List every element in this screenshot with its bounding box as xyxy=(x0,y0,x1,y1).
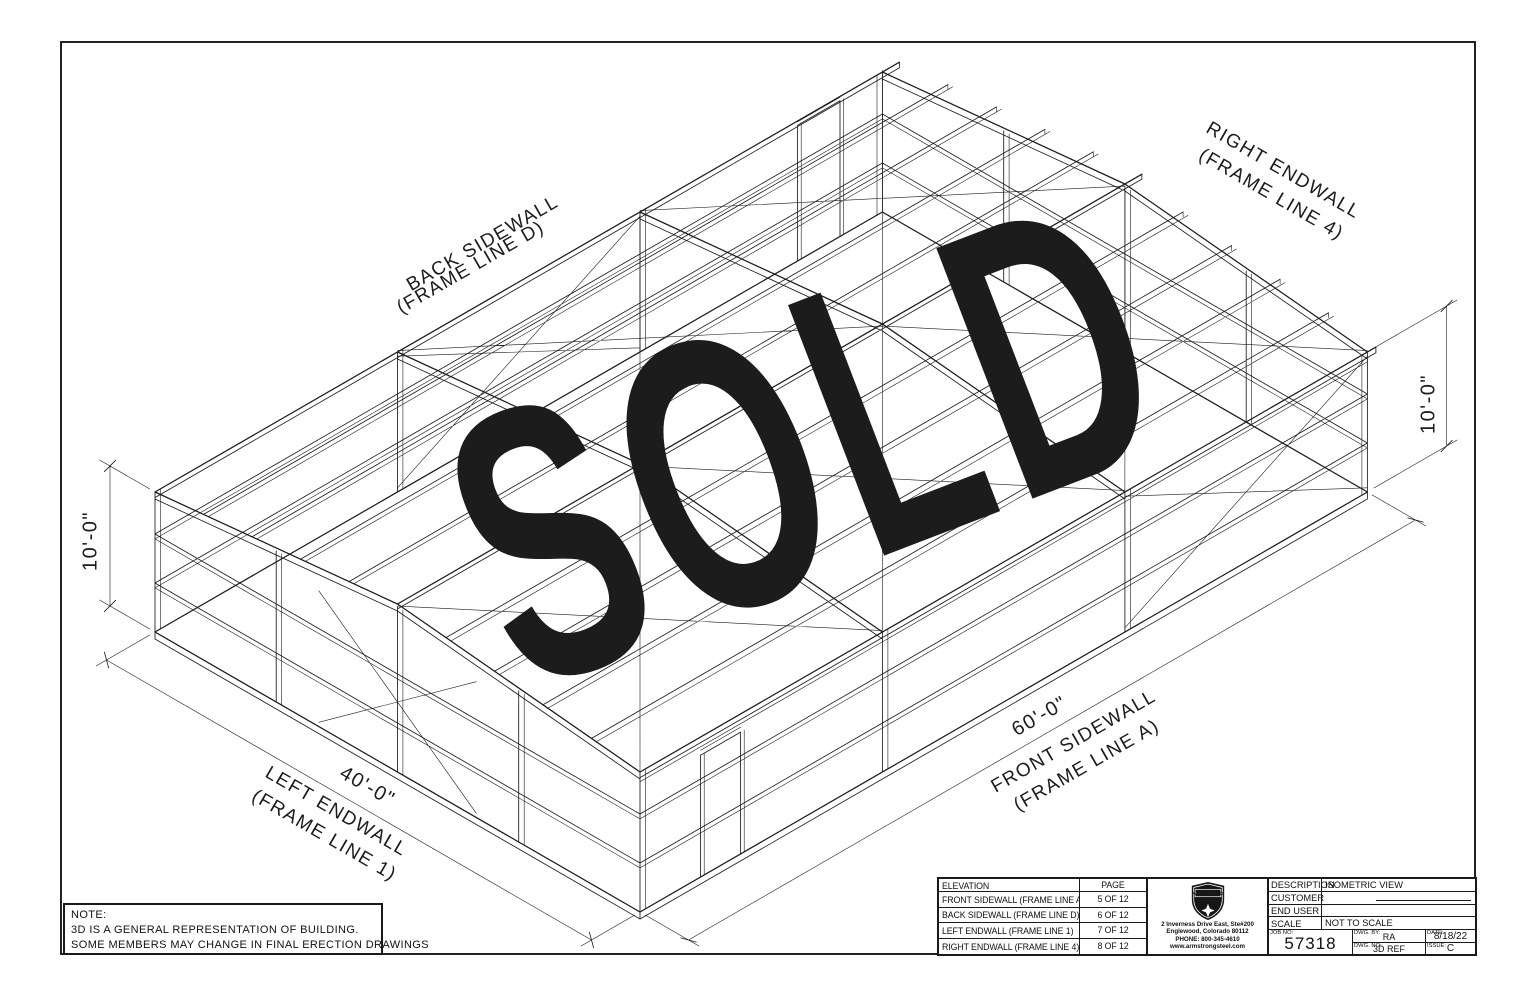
company-address-line1: 2 Inverness Drive East, Ste#200 xyxy=(1161,921,1254,928)
customer-value xyxy=(1322,892,1475,904)
right-eave-height-dimension: 10'-0" xyxy=(1417,374,1439,434)
description-row: DESCRIPTION ISOMETRIC VIEW xyxy=(1269,879,1475,892)
note-line-1: 3D IS A GENERAL REPRESENTATION OF BUILDI… xyxy=(71,923,375,938)
scale-value: NOT TO SCALE xyxy=(1322,917,1475,929)
isometric-drawing: BACK SIDEWALL (FRAME LINE D) RIGHT ENDWA… xyxy=(0,0,1536,994)
end-user-value xyxy=(1322,905,1475,917)
customer-blank-line xyxy=(1376,900,1471,901)
issue-row: ISSUE: C xyxy=(1426,942,1475,954)
sold-stamp: SOLD xyxy=(395,108,1220,772)
issue-value: C xyxy=(1447,943,1454,954)
date-issue-cell: DATE: 8/18/22 ISSUE: C xyxy=(1426,930,1475,954)
elevation-table: ELEVATION PAGE FRONT SIDEWALL (FRAME LIN… xyxy=(939,879,1148,954)
endwall-width-dimension: 40'-0" xyxy=(336,762,399,811)
job-info-band: JOB NO: 57318 DWG. BY: RA DWG. NO: 3D RE… xyxy=(1269,930,1475,954)
drawing-sheet: { "sold": { "text": "SOLD", "color": "#E… xyxy=(0,0,1536,994)
left-eave-height-dimension: 10'-0" xyxy=(79,511,101,571)
dwg-by-value: RA xyxy=(1383,932,1396,942)
drawing-info-cell: DWG. BY: RA DWG. NO: 3D REF xyxy=(1353,930,1426,954)
company-logo-cell: ARMSTRONG STEEL 2 Inverness Drive East, … xyxy=(1148,879,1269,954)
note-box: NOTE: 3D IS A GENERAL REPRESENTATION OF … xyxy=(63,903,383,955)
job-number: 57318 xyxy=(1284,934,1336,954)
table-row: RIGHT ENDWALL (FRAME LINE 4) 8 OF 12 xyxy=(939,939,1146,955)
dwg-by-row: DWG. BY: RA xyxy=(1353,930,1425,941)
svg-text:ARMSTRONG: ARMSTRONG xyxy=(1192,891,1223,897)
svg-text:STEEL: STEEL xyxy=(1201,898,1214,902)
end-user-row: END USER xyxy=(1269,905,1475,918)
dwg-no-row: DWG. NO: 3D REF xyxy=(1353,942,1425,954)
table-row: FRONT SIDEWALL (FRAME LINE A) 5 OF 12 xyxy=(939,892,1146,908)
back-sidewall-frameline: (FRAME LINE D) xyxy=(393,217,548,319)
elevation-table-header: ELEVATION PAGE xyxy=(939,879,1146,892)
company-phone: PHONE: 800-345-4610 xyxy=(1175,936,1239,943)
note-line-2: SOME MEMBERS MAY CHANGE IN FINAL ERECTIO… xyxy=(71,938,375,953)
note-title: NOTE: xyxy=(71,908,375,923)
table-row: LEFT ENDWALL (FRAME LINE 1) 7 OF 12 xyxy=(939,923,1146,939)
scale-row: SCALE NOT TO SCALE xyxy=(1269,917,1475,930)
elevation-header: ELEVATION xyxy=(939,879,1080,891)
job-number-cell: JOB NO: 57318 xyxy=(1269,930,1353,954)
date-row: DATE: 8/18/22 xyxy=(1426,930,1475,941)
company-address-line2: Englewood, Colorado 80112 xyxy=(1166,928,1248,935)
customer-row: CUSTOMER xyxy=(1269,892,1475,905)
page-header: PAGE xyxy=(1080,879,1146,891)
sidewall-length-dimension: 60'-0" xyxy=(1008,692,1071,741)
title-block: ELEVATION PAGE FRONT SIDEWALL (FRAME LIN… xyxy=(937,877,1477,956)
title-block-fields: DESCRIPTION ISOMETRIC VIEW CUSTOMER END … xyxy=(1269,879,1475,954)
armstrong-steel-logo-icon: ARMSTRONG STEEL xyxy=(1188,881,1228,921)
description-value: ISOMETRIC VIEW xyxy=(1322,879,1475,891)
table-row: BACK SIDEWALL (FRAME LINE D) 6 OF 12 xyxy=(939,908,1146,924)
company-website: www.armstrongsteel.com xyxy=(1170,943,1245,950)
